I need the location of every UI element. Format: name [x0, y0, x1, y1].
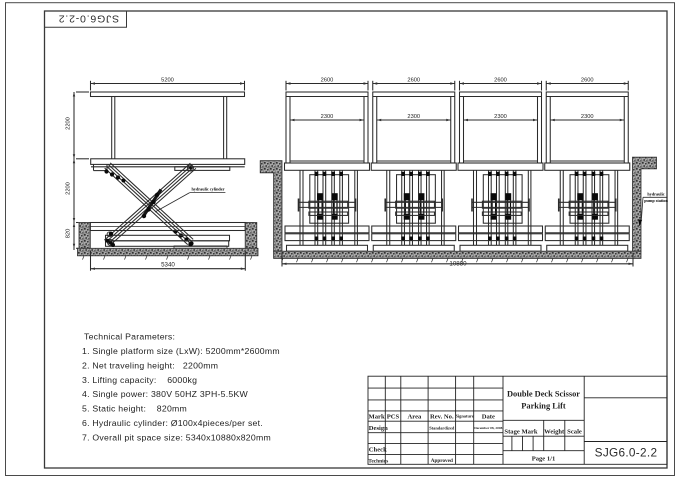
svg-text:Double Deck Scissor: Double Deck Scissor: [507, 389, 580, 398]
svg-text:Stage Mark: Stage Mark: [504, 429, 537, 436]
svg-text:10880: 10880: [449, 261, 467, 268]
svg-text:2200: 2200: [66, 182, 72, 195]
svg-text:Approved: Approved: [431, 458, 453, 464]
svg-text:Technics: Technics: [368, 458, 388, 464]
svg-text:Signature: Signature: [455, 414, 473, 419]
svg-text:Area: Area: [408, 413, 422, 420]
svg-text:Date: Date: [482, 413, 495, 420]
svg-text:820: 820: [66, 229, 72, 239]
svg-text:SJG6.0-2.2: SJG6.0-2.2: [58, 12, 119, 24]
svg-text:3. Lifting capacity: 6000kg: 3. Lifting capacity: 6000kg: [82, 375, 197, 385]
svg-text:pump station: pump station: [644, 198, 668, 203]
svg-text:5200: 5200: [161, 78, 174, 84]
svg-text:SJG6.0-2.2: SJG6.0-2.2: [595, 446, 658, 460]
svg-text:Design: Design: [369, 425, 388, 432]
svg-text:hydraulic cylinder: hydraulic cylinder: [192, 187, 225, 192]
svg-text:Page 1/1: Page 1/1: [532, 456, 556, 463]
svg-text:PCS: PCS: [387, 413, 400, 420]
svg-text:4. Single power: 380V 50HZ 3PH: 4. Single power: 380V 50HZ 3PH-5.5KW: [82, 389, 248, 399]
svg-text:Standardized: Standardized: [429, 425, 455, 430]
svg-text:Rev. No.: Rev. No.: [430, 413, 454, 420]
svg-text:6. Hydraulic cylinder: Ø100x4p: 6. Hydraulic cylinder: Ø100x4pieces/per …: [82, 418, 263, 428]
svg-text:7. Overall pit space size: 534: 7. Overall pit space size: 5340x10880x82…: [82, 432, 271, 442]
svg-text:hydraulic: hydraulic: [647, 192, 664, 197]
svg-text:2200: 2200: [66, 117, 72, 130]
svg-text:1. Single platform size (LxW):: 1. Single platform size (LxW): 5200mm*26…: [82, 346, 280, 356]
svg-text:Parking Lift: Parking Lift: [521, 401, 566, 410]
svg-text:Mark: Mark: [369, 413, 385, 420]
svg-text:Scale: Scale: [567, 429, 582, 436]
svg-text:Check: Check: [369, 447, 387, 454]
svg-text:5340: 5340: [161, 262, 175, 269]
svg-text:December 08, 2008: December 08, 2008: [474, 426, 502, 430]
svg-text:5. Static height: 820mm: 5. Static height: 820mm: [82, 404, 187, 414]
svg-text:2. Net traveling height: 220: 2. Net traveling height: 2200mm: [82, 360, 218, 370]
svg-text:Technical Parameters:: Technical Parameters:: [84, 332, 175, 342]
svg-text:Weight: Weight: [544, 429, 565, 436]
